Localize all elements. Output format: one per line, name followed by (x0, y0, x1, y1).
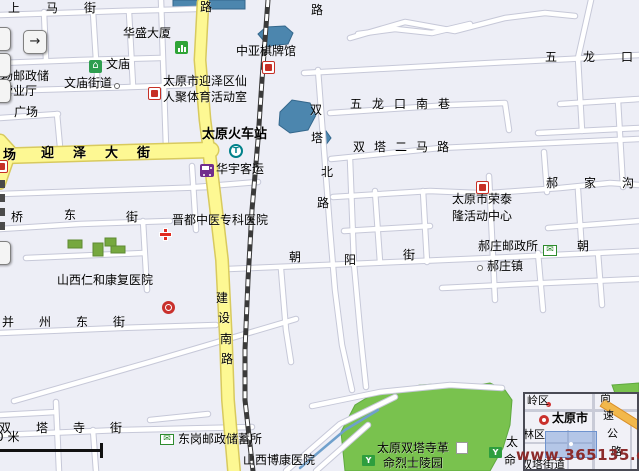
cemetery-park-icon[interactable]: Y (362, 455, 375, 466)
map-label: 塔 (311, 132, 323, 146)
map-control-button[interactable] (0, 79, 11, 103)
building-block (93, 243, 103, 256)
map-label: 路 (221, 353, 233, 367)
road-plaza-lane (57, 114, 60, 147)
building-block (68, 240, 82, 248)
map-label: 太原火车站 (202, 128, 267, 143)
map-label: 郝家沟 (546, 177, 639, 191)
haozhuang-post-office-icon[interactable]: ✉ (543, 245, 557, 256)
building-block (111, 246, 125, 253)
map-label: 阳 (344, 254, 356, 268)
map-label: 东岗邮政储蓄所 (178, 433, 262, 447)
map-label: 朝 (289, 251, 301, 265)
map-label: 桥 (11, 211, 23, 225)
map-label: 双塔寺街 (0, 422, 147, 436)
minimap-label: 岭区 (527, 395, 549, 408)
railway-station-icon[interactable]: T (229, 144, 243, 158)
map-label: 文庙 (106, 58, 130, 72)
map-label: 太原双塔寺革 (377, 442, 449, 456)
minimap-label: 尚 (600, 392, 611, 405)
map-label: 路 (311, 4, 323, 18)
road-street-y420 (150, 414, 208, 420)
haozhuang-town-dot[interactable] (477, 265, 483, 271)
pan-right-button[interactable]: → (23, 30, 47, 54)
edge-mark (0, 222, 5, 230)
map-label: 广场 (14, 106, 38, 120)
road-street-y101 (560, 99, 639, 104)
map-label: 人聚体育活动室 (163, 91, 247, 105)
map-label: 五龙口 (545, 51, 639, 65)
building-marker[interactable] (456, 442, 468, 454)
minimap-label: 林区 (523, 429, 545, 442)
map-label: 山西博康医院 (243, 454, 315, 468)
map-label: 命 (504, 454, 516, 468)
road-street-y60 (0, 58, 160, 63)
map-label: 五龙口南巷 (350, 98, 460, 112)
map-label: 设 (218, 312, 230, 326)
map-label: 路 (200, 1, 212, 15)
map-label: 中亚棋牌馆 (236, 45, 296, 59)
huayu-bus-terminal-icon[interactable] (200, 164, 214, 177)
map-control-button[interactable] (0, 241, 11, 265)
map-label: 晋都中医专科医院 (172, 214, 268, 228)
map-label: 迎泽大街 (41, 147, 169, 162)
minimap-label: 公 (607, 428, 618, 441)
scale-bar (0, 449, 102, 452)
scale-text: 0 米 (0, 431, 19, 445)
map-label: 郝庄镇 (487, 260, 523, 274)
sports-activity-room-icon[interactable] (148, 87, 161, 100)
road-street-y131 (538, 128, 639, 133)
jindu-hospital-icon[interactable] (160, 229, 171, 240)
wenmiao-temple-icon[interactable]: ⌂ (89, 60, 102, 73)
minimap-label: 速 (603, 410, 614, 423)
map-label: 双塔二马路 (353, 141, 458, 155)
edge-mark (0, 194, 5, 202)
map-label: 郝庄邮政所 (478, 240, 538, 254)
map-label: 山西仁和康复医院 (57, 274, 153, 288)
map-label: 太原市迎泽区仙 (163, 75, 247, 89)
edge-poi-icon[interactable] (0, 160, 8, 173)
donggang-post-savings-icon[interactable]: ✉ (160, 434, 174, 445)
map-control-button[interactable] (0, 27, 11, 51)
map-label: 上马街 (8, 2, 122, 16)
renhe-hospital-icon[interactable] (162, 301, 175, 314)
map-label: 双 (310, 104, 322, 118)
map-label: 太原市荣泰 (452, 193, 512, 207)
wenmiao-jiedao-dot[interactable] (114, 83, 120, 89)
edge-mark (0, 208, 5, 216)
savings-bank-icon[interactable] (175, 41, 188, 54)
zhongya-chess-hall-icon[interactable] (262, 61, 275, 74)
map-label: 南 (220, 333, 232, 347)
map-label: 华宇客运 (216, 163, 264, 177)
map-label: 建 (216, 292, 228, 306)
road-street-y228 (344, 226, 430, 231)
road-station-east-street (196, 182, 258, 187)
watermark: www.365135.com (516, 446, 639, 464)
minimap-label: 太原市 (552, 412, 588, 426)
map-label: 命烈士陵园 (383, 457, 443, 471)
map-label: 路 (317, 197, 329, 211)
map-label: 朝 (577, 240, 589, 254)
map-label: 街 (403, 249, 415, 263)
rongtailong-center-icon[interactable] (476, 181, 489, 194)
minimap-city-icon (539, 415, 549, 425)
map-label: 并州东街 (2, 316, 150, 330)
road-street-y256 (26, 253, 144, 258)
map-label: 华盛大厦 (123, 27, 171, 41)
cemetery-park-icon-2[interactable]: Y (489, 447, 502, 458)
building-block (105, 238, 116, 246)
map-label: 北 (321, 166, 333, 180)
map-label: 东 (64, 209, 76, 223)
map-viewport[interactable]: 上马街华盛大厦文庙文庙街道场邮政储营业厅广场中亚棋牌馆太原市迎泽区仙人聚体育活动… (0, 0, 639, 471)
map-label: 隆活动中心 (452, 210, 512, 224)
road-lane-x377 (375, 191, 380, 262)
road-lane-x621 (618, 101, 623, 187)
edge-mark (0, 180, 5, 188)
map-control-button[interactable] (0, 53, 11, 77)
scale-bar-tick (100, 443, 103, 458)
map-label: 文庙街道 (64, 77, 112, 91)
road-street-y413 (0, 412, 56, 415)
road-lane-x540-s (538, 253, 543, 310)
map-label: 街 (126, 211, 138, 225)
